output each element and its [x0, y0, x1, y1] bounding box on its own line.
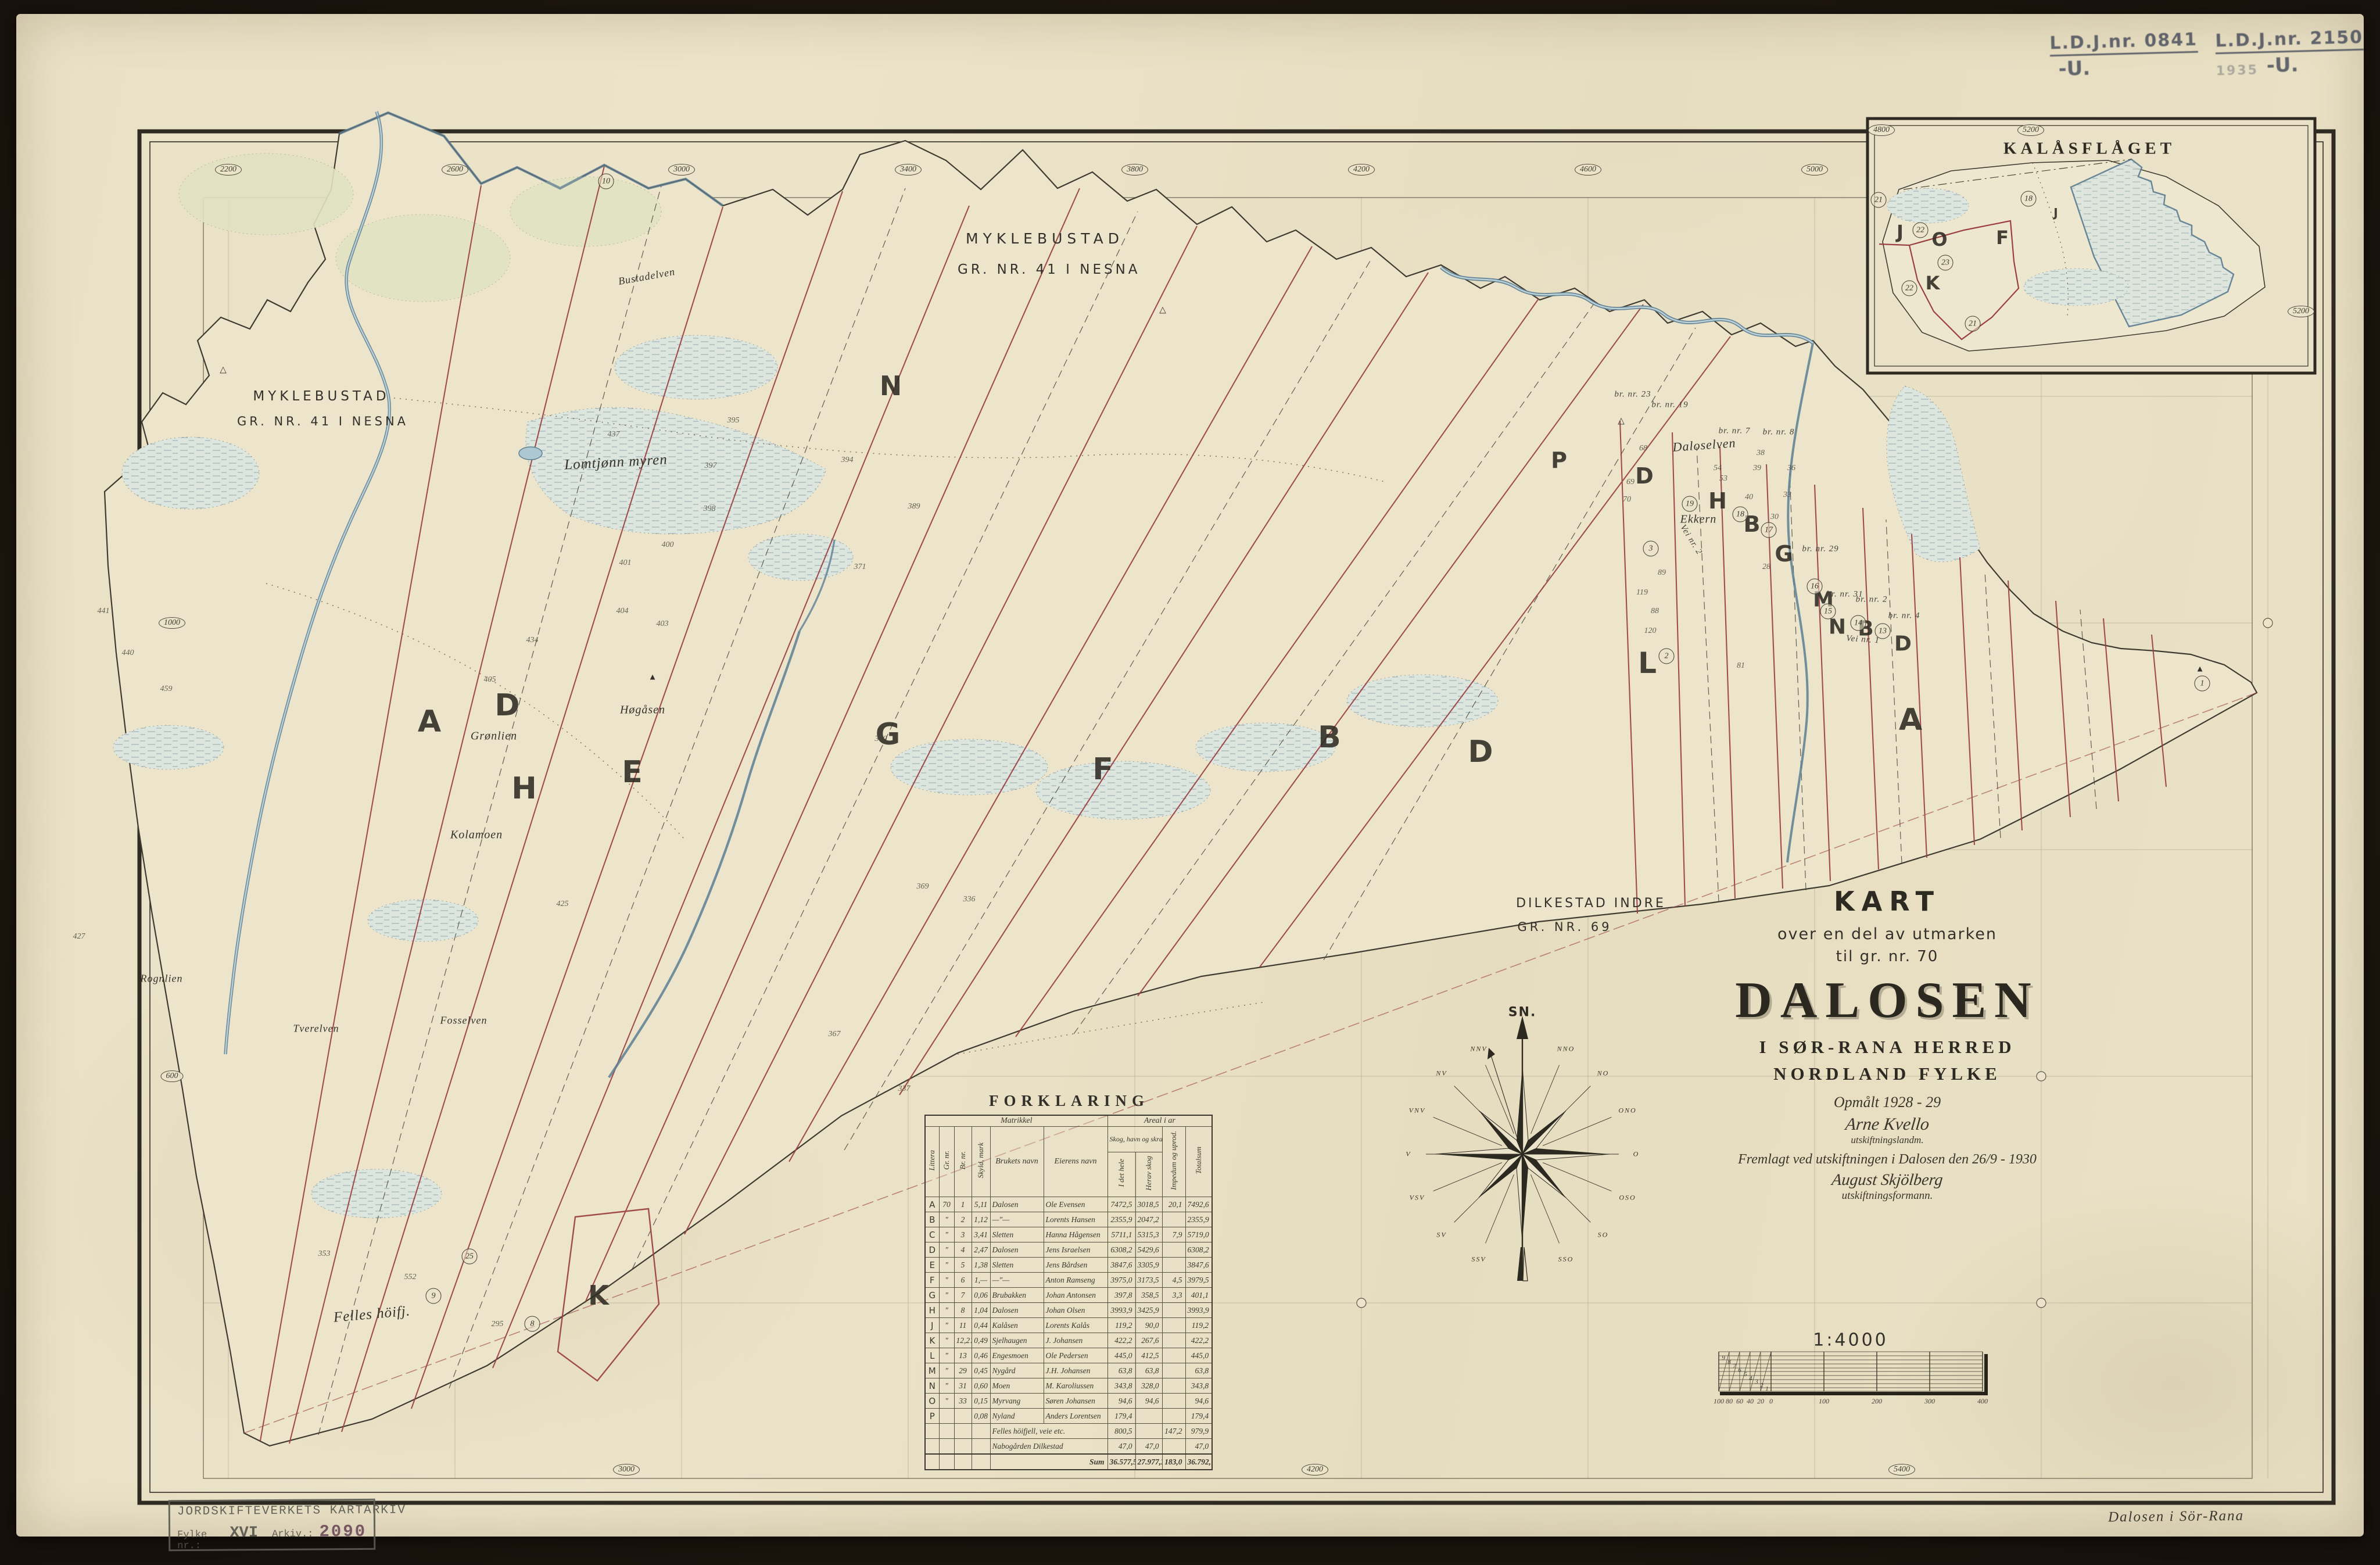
journal-stamp-1: L.D.J.nr. 0841 -U.	[2049, 30, 2199, 81]
legend-cell: 979,9	[1185, 1424, 1212, 1439]
legend-cell: Dalosen	[990, 1303, 1044, 1318]
label-myklebustad-top: MYKLEBUSTAD GR. NR. 41 I NESNA	[958, 230, 1132, 277]
legend-cell: Dalosen	[990, 1242, 1044, 1258]
archive-field-value: 2090	[319, 1522, 367, 1542]
legend-cell: Lorents Hansen	[1044, 1212, 1107, 1227]
legend-cell: 47,0	[1107, 1439, 1135, 1455]
legend-cell	[939, 1424, 954, 1439]
legend-cell: 3975,0	[1107, 1273, 1135, 1288]
legend-cell: 94,6	[1135, 1394, 1162, 1409]
presented-note: Fremlagt ved utskiftningen i Dalosen den…	[1719, 1152, 2056, 1168]
legend-cell: Myrvang	[990, 1394, 1044, 1409]
legend-cell	[1162, 1303, 1185, 1318]
legend-cell	[1162, 1439, 1185, 1455]
legend-cell: A	[925, 1197, 939, 1212]
legend-header: Skyld, mark	[972, 1127, 990, 1197]
legend-row: Nabogården Dilkestad47,047,047,0	[925, 1439, 1212, 1455]
legend-cell: 63,8	[1107, 1363, 1135, 1378]
title-subline: over en del av utmarken	[1719, 925, 2056, 943]
legend-cell: 7492,6	[1185, 1197, 1212, 1212]
legend-cell: 0,46	[972, 1348, 990, 1363]
legend-row: K″12,210,49SjelhaugenJ. Johansen422,2267…	[925, 1333, 1212, 1348]
legend-cell: 70	[939, 1197, 954, 1212]
legend-cell: 1	[954, 1197, 972, 1212]
county-field-value: XVI	[230, 1524, 258, 1542]
legend-cell: L	[925, 1348, 939, 1363]
surveyed-note: Opmålt 1928 - 29	[1719, 1094, 2056, 1111]
legend-cell: —″—	[990, 1212, 1044, 1227]
legend-row: Sum36.577,527.977,3183,036.792,7	[925, 1454, 1212, 1470]
legend-cell: C	[925, 1227, 939, 1242]
legend-cell	[954, 1454, 972, 1470]
legend-cell: Kalåsen	[990, 1318, 1044, 1333]
legend-cell	[1135, 1409, 1162, 1424]
stamp-suffix: -U.	[2266, 53, 2299, 77]
legend-cell: 4	[954, 1242, 972, 1258]
legend-cell: 1,04	[972, 1303, 990, 1318]
legend-cell: Hanna Hågensen	[1044, 1227, 1107, 1242]
legend-cell: ″	[939, 1394, 954, 1409]
inset-title: KALÅSFLÅGET	[2003, 139, 2175, 159]
legend-cell: 179,4	[1107, 1409, 1135, 1424]
legend-cell: Ole Evensen	[1044, 1197, 1107, 1212]
legend-cell	[1162, 1409, 1185, 1424]
legend-cell: 12,21	[954, 1333, 972, 1348]
legend-cell: 2355,9	[1185, 1212, 1212, 1227]
map-sheet-paper: NADHEGFBDLAKPDHBGMNBDJOFKJLomtjønn myren…	[16, 14, 2364, 1537]
legend-row: P0,08NylandAnders Lorentsen179,4179,4	[925, 1409, 1212, 1424]
legend-cell: H	[925, 1303, 939, 1318]
compass-north-label: SN.	[1508, 1005, 1537, 1020]
chairman-signature: August Skjölberg	[1718, 1171, 2056, 1190]
legend-cell: Sum	[990, 1454, 1107, 1470]
legend-cell: Ole Pedersen	[1044, 1348, 1107, 1363]
legend-cell: Søren Johansen	[1044, 1394, 1107, 1409]
legend-cell	[1162, 1242, 1185, 1258]
legend-cell: Brubakken	[990, 1288, 1044, 1303]
legend-cell: 36.792,7	[1185, 1454, 1212, 1470]
legend-title: FORKLARING	[924, 1092, 1214, 1110]
legend-cell: Engesmoen	[990, 1348, 1044, 1363]
stamp-year: 1935	[2216, 63, 2259, 78]
legend-cell	[939, 1454, 954, 1470]
legend-row: G″70,06BrubakkenJohan Antonsen397,8358,5…	[925, 1288, 1212, 1303]
legend-cell: ″	[939, 1258, 954, 1273]
legend-cell: 5719,0	[1185, 1227, 1212, 1242]
legend-cell: 328,0	[1135, 1378, 1162, 1394]
legend-cell: 179,4	[1185, 1409, 1212, 1424]
legend-header: Gr. nr.	[939, 1127, 954, 1197]
legend-row: Felles höifjell, veie etc.800,5147,2979,…	[925, 1424, 1212, 1439]
map-title-kart: KART	[1719, 886, 2056, 917]
legend-cell	[939, 1409, 954, 1424]
legend-cell: Jens Bårdsen	[1044, 1258, 1107, 1273]
legend-cell: 445,0	[1107, 1348, 1135, 1363]
legend-cell	[925, 1454, 939, 1470]
legend-cell: O	[925, 1394, 939, 1409]
legend-row: A7015,11DalosenOle Evensen7472,53018,520…	[925, 1197, 1212, 1212]
scale-ratio: 1:4000	[1813, 1330, 1888, 1351]
legend-cell: 8	[954, 1303, 972, 1318]
legend-cell: 1,12	[972, 1212, 990, 1227]
legend-cell: M. Karoliussen	[1044, 1378, 1107, 1394]
legend-row: M″290,45NygårdJ.H. Johansen63,863,863,8	[925, 1363, 1212, 1378]
legend-cell: 36.577,5	[1107, 1454, 1135, 1470]
legend-cell: ″	[939, 1273, 954, 1288]
legend-cell: Anton Ramseng	[1044, 1273, 1107, 1288]
legend-row: C″33,41SlettenHanna Hågensen5711,15315,3…	[925, 1227, 1212, 1242]
label-line: GR. NR. 41 I NESNA	[237, 414, 406, 428]
legend-cell	[1162, 1394, 1185, 1409]
legend-header: I det hele	[1107, 1152, 1135, 1197]
archive-stamp-title: JORDSKIFTEVERKETS KARTARKIV	[177, 1504, 367, 1519]
legend-cell: Nygård	[990, 1363, 1044, 1378]
legend-cell: 0,60	[972, 1378, 990, 1394]
legend-panel: FORKLARING MatrikkelAreal i arLitteraGr.…	[924, 1092, 1214, 1470]
legend-cell: F	[925, 1273, 939, 1288]
label-dilkestad: DILKESTAD INDRE GR. NR. 69	[1515, 896, 1666, 934]
legend-cell: 29	[954, 1363, 972, 1378]
legend-cell: 1,—	[972, 1273, 990, 1288]
legend-cell: 0,15	[972, 1394, 990, 1409]
legend-header: Skog, havn og skrapmark	[1107, 1127, 1162, 1152]
legend-cell: 0,45	[972, 1363, 990, 1378]
legend-row: B″21,12—″—Lorents Hansen2355,92047,22355…	[925, 1212, 1212, 1227]
archive-field-label: Arkiv.:	[272, 1529, 314, 1540]
legend-cell: Sletten	[990, 1227, 1044, 1242]
legend-cell: Moen	[990, 1378, 1044, 1394]
legend-cell: 11	[954, 1318, 972, 1333]
legend-cell: M	[925, 1363, 939, 1378]
legend-cell: 0,49	[972, 1333, 990, 1348]
legend-cell: Nyland	[990, 1409, 1044, 1424]
legend-table: MatrikkelAreal i arLitteraGr. nr.Br. nr.…	[924, 1115, 1213, 1470]
legend-cell: 5	[954, 1258, 972, 1273]
legend-cell: 343,8	[1185, 1378, 1212, 1394]
legend-cell: 147,2	[1162, 1424, 1185, 1439]
legend-header: Br. nr.	[954, 1127, 972, 1197]
legend-cell: 0,06	[972, 1288, 990, 1303]
legend-row: H″81,04DalosenJohan Olsen3993,93425,9399…	[925, 1303, 1212, 1318]
map-title-name: DALOSEN	[1719, 971, 2056, 1030]
legend-cell: 3,3	[1162, 1288, 1185, 1303]
legend-header: Brukets navn	[990, 1127, 1044, 1197]
title-subline: til gr. nr. 70	[1719, 948, 2056, 965]
legend-cell: 63,8	[1185, 1363, 1212, 1378]
legend-cell: —″—	[990, 1273, 1044, 1288]
legend-cell: 33	[954, 1394, 972, 1409]
legend-cell: 412,5	[1135, 1348, 1162, 1363]
handwritten-note: Dalosen i Sör-Rana	[2108, 1508, 2244, 1525]
legend-header: Matrikkel	[925, 1115, 1107, 1127]
legend-cell: 3993,9	[1107, 1303, 1135, 1318]
legend-header: Herav skog	[1135, 1152, 1162, 1197]
legend-cell: 800,5	[1107, 1424, 1135, 1439]
legend-header: Impedum og uprod.	[1162, 1127, 1185, 1197]
label-myklebustad-left: MYKLEBUSTAD GR. NR. 41 I NESNA	[237, 389, 406, 428]
legend-row: J″110,44KalåsenLorents Kalås119,290,0119…	[925, 1318, 1212, 1333]
legend-cell: 267,6	[1135, 1333, 1162, 1348]
legend-cell: 7,9	[1162, 1227, 1185, 1242]
compass-rose	[1426, 1016, 1619, 1281]
legend-cell	[1162, 1333, 1185, 1348]
legend-cell: D	[925, 1242, 939, 1258]
legend-cell: ″	[939, 1303, 954, 1318]
legend-cell: P	[925, 1409, 939, 1424]
legend-cell: 6	[954, 1273, 972, 1288]
label-line: GR. NR. 41 I NESNA	[958, 262, 1132, 277]
legend-cell: ″	[939, 1378, 954, 1394]
legend-cell: Sjelhaugen	[990, 1333, 1044, 1348]
legend-cell: 5315,3	[1135, 1227, 1162, 1242]
legend-header: Littera	[925, 1127, 939, 1197]
legend-row: N″310,60MoenM. Karoliussen343,8328,0343,…	[925, 1378, 1212, 1394]
legend-header: Areal i ar	[1107, 1115, 1212, 1127]
county-field-label: Fylke nr.:	[177, 1530, 224, 1552]
chairman-title: utskiftningsformann.	[1719, 1190, 2056, 1202]
title-district: I SØR-RANA HERRED	[1719, 1037, 2056, 1058]
legend-cell: 3	[954, 1227, 972, 1242]
label-line: MYKLEBUSTAD	[958, 230, 1132, 247]
legend-cell	[972, 1424, 990, 1439]
legend-cell: B	[925, 1212, 939, 1227]
archive-stamp: JORDSKIFTEVERKETS KARTARKIV Fylke nr.: X…	[169, 1499, 376, 1551]
legend-cell	[1162, 1378, 1185, 1394]
legend-cell	[1135, 1424, 1162, 1439]
legend-cell: 47,0	[1135, 1439, 1162, 1455]
label-line: DILKESTAD INDRE	[1515, 896, 1666, 911]
legend-cell: ″	[939, 1288, 954, 1303]
legend-cell: 445,0	[1185, 1348, 1212, 1363]
legend-cell: ″	[939, 1318, 954, 1333]
legend-cell: 2047,2	[1135, 1212, 1162, 1227]
legend-cell: 2355,9	[1107, 1212, 1135, 1227]
legend-cell	[1162, 1318, 1185, 1333]
legend-cell: 3993,9	[1185, 1303, 1212, 1318]
legend-cell: 3847,6	[1107, 1258, 1135, 1273]
legend-cell	[972, 1454, 990, 1470]
legend-cell: K	[925, 1333, 939, 1348]
legend-cell: Anders Lorentsen	[1044, 1409, 1107, 1424]
legend-cell: 94,6	[1107, 1394, 1135, 1409]
legend-cell	[972, 1439, 990, 1455]
legend-cell: 4,5	[1162, 1273, 1185, 1288]
scale-bar	[1719, 1352, 1986, 1394]
legend-cell: 3847,6	[1185, 1258, 1212, 1273]
legend-cell: N	[925, 1378, 939, 1394]
legend-cell: 119,2	[1185, 1318, 1212, 1333]
scanned-map-photo: NADHEGFBDLAKPDHBGMNBDJOFKJLomtjønn myren…	[0, 0, 2380, 1565]
legend-cell: J. Johansen	[1044, 1333, 1107, 1348]
legend-cell	[1162, 1363, 1185, 1378]
legend-cell: 6308,2	[1107, 1242, 1135, 1258]
legend-cell: 6308,2	[1185, 1242, 1212, 1258]
legend-cell: ″	[939, 1363, 954, 1378]
legend-cell: 5,11	[972, 1197, 990, 1212]
stamp-number: L.D.J.nr. 2150	[2215, 27, 2364, 55]
legend-row: L″130,46EngesmoenOle Pedersen445,0412,54…	[925, 1348, 1212, 1363]
legend-row: F″61,——″—Anton Ramseng3975,03173,54,5397…	[925, 1273, 1212, 1288]
legend-cell: 3018,5	[1135, 1197, 1162, 1212]
legend-row: E″51,38SlettenJens Bårdsen3847,63305,938…	[925, 1258, 1212, 1273]
legend-cell: 1,38	[972, 1258, 990, 1273]
legend-cell	[1162, 1258, 1185, 1273]
legend-cell: ″	[939, 1242, 954, 1258]
legend-cell: 3173,5	[1135, 1273, 1162, 1288]
legend-cell: 183,0	[1162, 1454, 1185, 1470]
legend-cell: 397,8	[1107, 1288, 1135, 1303]
surveyor-signature: Arne Kvello	[1718, 1115, 2057, 1134]
legend-cell	[1162, 1348, 1185, 1363]
legend-cell: Lorents Kalås	[1044, 1318, 1107, 1333]
legend-cell: 3,41	[972, 1227, 990, 1242]
legend-row: D″42,47DalosenJens Israelsen6308,25429,6…	[925, 1242, 1212, 1258]
legend-row: O″330,15MyrvangSøren Johansen94,694,694,…	[925, 1394, 1212, 1409]
legend-cell: Jens Israelsen	[1044, 1242, 1107, 1258]
legend-cell	[939, 1439, 954, 1455]
legend-cell: 5429,6	[1135, 1242, 1162, 1258]
legend-cell: 13	[954, 1348, 972, 1363]
legend-cell: Nabogården Dilkestad	[990, 1439, 1107, 1455]
legend-cell: ″	[939, 1348, 954, 1363]
surveyor-title: utskiftningslandm.	[1719, 1134, 2056, 1146]
legend-cell: 119,2	[1107, 1318, 1135, 1333]
legend-cell: 3425,9	[1135, 1303, 1162, 1318]
title-county: NORDLAND FYLKE	[1719, 1063, 2056, 1084]
legend-cell: 3979,5	[1185, 1273, 1212, 1288]
legend-cell: 401,1	[1185, 1288, 1212, 1303]
legend-cell: 20,1	[1162, 1197, 1185, 1212]
legend-cell: 343,8	[1107, 1378, 1135, 1394]
legend-cell: 27.977,3	[1135, 1454, 1162, 1470]
label-line: GR. NR. 69	[1515, 920, 1614, 934]
legend-cell: 3305,9	[1135, 1258, 1162, 1273]
stamp-number: L.D.J.nr. 0841	[2049, 30, 2198, 57]
legend-cell: E	[925, 1258, 939, 1273]
legend-cell: Johan Olsen	[1044, 1303, 1107, 1318]
legend-cell: 7	[954, 1288, 972, 1303]
stamp-suffix: -U.	[2058, 57, 2091, 81]
legend-header: Totalsum	[1185, 1127, 1212, 1197]
legend-cell: 0,08	[972, 1409, 990, 1424]
legend-cell: 90,0	[1135, 1318, 1162, 1333]
journal-stamp-2: L.D.J.nr. 2150 1935 -U.	[2215, 27, 2364, 79]
legend-cell: 31	[954, 1378, 972, 1394]
legend-cell: Johan Antonsen	[1044, 1288, 1107, 1303]
legend-cell: ″	[939, 1333, 954, 1348]
legend-cell: 422,2	[1107, 1333, 1135, 1348]
legend-cell: J	[925, 1318, 939, 1333]
label-line: MYKLEBUSTAD	[237, 389, 406, 404]
legend-cell: 2	[954, 1212, 972, 1227]
legend-cell: J.H. Johansen	[1044, 1363, 1107, 1378]
legend-cell: 94,6	[1185, 1394, 1212, 1409]
legend-header: Eierens navn	[1044, 1127, 1107, 1197]
legend-cell: 47,0	[1185, 1439, 1212, 1455]
legend-cell: 7472,5	[1107, 1197, 1135, 1212]
legend-cell	[1162, 1212, 1185, 1227]
title-block: KART over en del av utmarken til gr. nr.…	[1719, 886, 2056, 1202]
legend-cell	[954, 1424, 972, 1439]
legend-cell: 2,47	[972, 1242, 990, 1258]
legend-cell: G	[925, 1288, 939, 1303]
legend-cell: 0,44	[972, 1318, 990, 1333]
legend-cell: 422,2	[1185, 1333, 1212, 1348]
legend-cell: 358,5	[1135, 1288, 1162, 1303]
legend-cell: 63,8	[1135, 1363, 1162, 1378]
legend-cell	[925, 1424, 939, 1439]
legend-cell	[925, 1439, 939, 1455]
legend-cell: 5711,1	[1107, 1227, 1135, 1242]
legend-cell: Felles höifjell, veie etc.	[990, 1424, 1107, 1439]
legend-cell: Dalosen	[990, 1197, 1044, 1212]
legend-cell: ″	[939, 1227, 954, 1242]
legend-cell	[954, 1409, 972, 1424]
legend-cell: ″	[939, 1212, 954, 1227]
legend-cell	[954, 1439, 972, 1455]
legend-cell: Sletten	[990, 1258, 1044, 1273]
